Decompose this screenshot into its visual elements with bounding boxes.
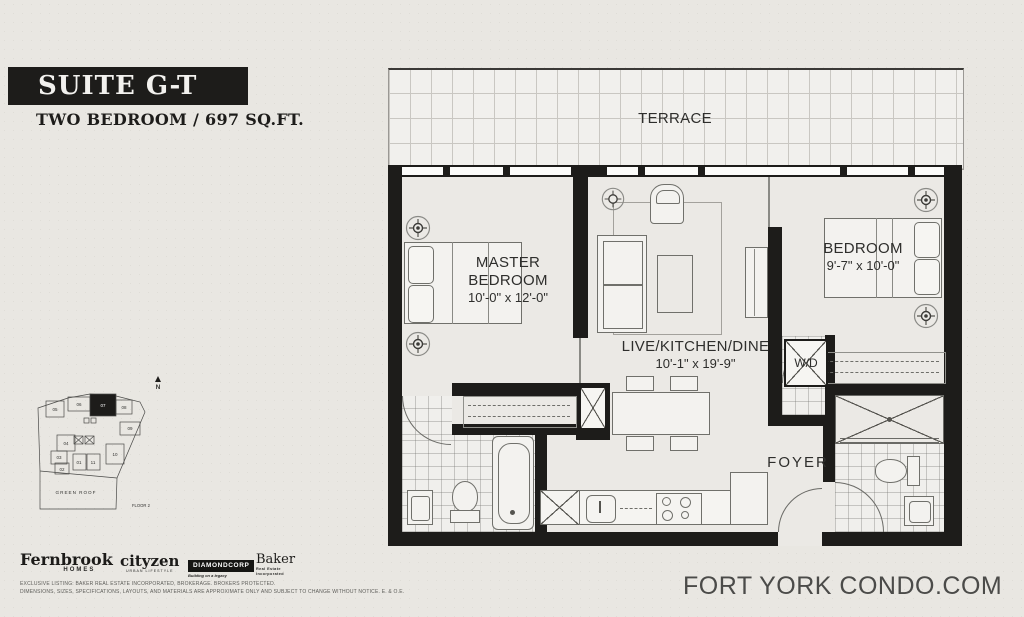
- keyplan-unit-label: 02: [59, 467, 65, 472]
- tv-console-line: [754, 249, 755, 316]
- keyplan: 05 06 07 08 09 04 03 02 01 11 10 GREEN R…: [28, 372, 178, 522]
- sofa-cushion: [603, 241, 643, 285]
- ceiling-light-icon: [404, 330, 432, 358]
- dining-chair: [670, 436, 698, 451]
- kitchen-faucet: [599, 501, 601, 513]
- bath2-sink-basin: [909, 501, 931, 523]
- window-wall-segment: [571, 165, 607, 177]
- bedroom-partition-line: [768, 177, 770, 227]
- disclaimer-line2: DIMENSIONS, SIZES, SPECIFICATIONS, LAYOU…: [20, 588, 404, 596]
- suite-subtitle: TWO BEDROOM / 697 SQ.FT.: [36, 110, 304, 129]
- suite-title: SUITE G-T: [8, 71, 197, 101]
- wall-bottom-right: [822, 532, 962, 546]
- logo-cityzen-name: cityzen: [120, 552, 179, 570]
- bath2-toilet-tank: [907, 456, 920, 486]
- window-mullion: [698, 165, 705, 177]
- living-dims: 10'-1" x 19'-9": [598, 356, 793, 371]
- floorplan-page: { "header": { "suite_name": "SUITE G-T",…: [0, 0, 1024, 617]
- ceiling-light-icon: [600, 186, 626, 212]
- logo-baker-tagline: Real Estate Incorporated: [256, 567, 300, 576]
- disclaimer-line1: EXCLUSIVE LISTING: BAKER REAL ESTATE INC…: [20, 580, 404, 588]
- wall-master-bath: [452, 383, 578, 396]
- keyplan-unit-label: 06: [76, 402, 82, 407]
- bath1-sink-basin: [411, 496, 430, 521]
- fridge: [540, 490, 580, 525]
- logo-diamondcorp-name: DIAMONDCORP: [188, 560, 254, 572]
- window-mullion: [908, 165, 915, 177]
- shower-drain: [887, 417, 892, 422]
- sofa-cushion: [603, 285, 643, 329]
- logo-diamondcorp: DIAMONDCORP Building on a legacy: [188, 554, 254, 578]
- keyplan-unit-label: 04: [63, 441, 69, 446]
- window-wall: [388, 165, 962, 177]
- floor-label: FLOOR 2: [132, 503, 151, 508]
- window-mullion: [638, 165, 645, 177]
- keyplan-unit-label: 03: [56, 455, 62, 460]
- foyer-label: FOYER: [738, 454, 858, 472]
- keyplan-unit-label: 10: [112, 452, 118, 457]
- keyplan-unit-label: 08: [121, 405, 127, 410]
- green-roof-label: GREEN ROOF: [56, 490, 97, 495]
- terrace-label: TERRACE: [388, 110, 962, 128]
- wall-wd-bottom: [768, 415, 830, 426]
- master-closet: [463, 396, 577, 428]
- pantry-cabinet: [730, 472, 768, 525]
- dining-chair: [626, 376, 654, 391]
- keyplan-unit-label: 11: [91, 460, 96, 465]
- keyplan-unit-label: 01: [76, 460, 82, 465]
- logo-baker-name: Baker: [256, 552, 300, 567]
- armchair-back: [656, 190, 680, 204]
- window-mullion: [443, 165, 450, 177]
- floorplan: TERRACE: [388, 68, 962, 558]
- logo-fernbrook: Fernbrook HOMES: [20, 550, 113, 573]
- keyplan-unit-label: 09: [127, 426, 133, 431]
- wall-living-bedroom: [768, 227, 782, 423]
- master-bedroom-dims: 10'-0" x 12'-0": [433, 290, 583, 305]
- tv-console: [745, 247, 768, 318]
- ceiling-light-icon: [912, 186, 940, 214]
- counter-dash: [620, 508, 652, 509]
- logo-cityzen-tagline: URBAN LIFESTYLE: [120, 569, 179, 573]
- shower-threshold: [840, 438, 939, 443]
- master-bedroom-label: MASTER BEDROOM: [448, 254, 568, 289]
- master-bed-pillow: [408, 285, 434, 323]
- laundry-label: W/D: [784, 356, 828, 370]
- coffee-table: [657, 255, 693, 313]
- north-arrow-icon: [155, 376, 161, 382]
- greenroof-separator: [40, 471, 117, 478]
- closet-shelf-line: [468, 416, 570, 417]
- bath1-toilet-tank: [450, 510, 480, 523]
- corridor-cell: [84, 418, 89, 423]
- ceiling-light-icon: [404, 214, 432, 242]
- logo-diamondcorp-tagline: Building on a legacy: [188, 573, 254, 578]
- wall-bottom-left: [388, 532, 778, 546]
- bedroom-label: BEDROOM: [788, 240, 938, 258]
- bathtub-drain: [510, 510, 515, 515]
- bath1-toilet-bowl: [452, 481, 478, 512]
- wall-left: [388, 165, 402, 546]
- closet-rod-line: [468, 405, 570, 406]
- window-mullion: [503, 165, 510, 177]
- corridor-cell: [91, 418, 96, 423]
- wall-bedroom-bath2: [835, 383, 962, 395]
- bath2-toilet-bowl: [875, 459, 907, 483]
- north-label: N: [156, 384, 161, 391]
- kitchen-sink: [586, 495, 616, 523]
- living-label: LIVE/KITCHEN/DINE: [598, 338, 793, 356]
- website-text: FORT YORK CONDO.COM: [683, 572, 1002, 601]
- suite-title-banner: SUITE G-T: [8, 67, 248, 105]
- shaft-xbox: [581, 388, 605, 428]
- keyplan-unit-label: 05: [52, 407, 58, 412]
- dining-chair: [670, 376, 698, 391]
- wall-right: [944, 165, 962, 546]
- dining-chair: [626, 436, 654, 451]
- dining-table: [612, 392, 710, 435]
- window-mullion: [840, 165, 847, 177]
- master-bed-pillow: [408, 246, 434, 284]
- logo-cityzen: cityzen URBAN LIFESTYLE: [120, 552, 179, 573]
- disclaimer: EXCLUSIVE LISTING: BAKER REAL ESTATE INC…: [20, 580, 404, 596]
- bedroom-dims: 9'-7" x 10'-0": [788, 258, 938, 273]
- keyplan-unit-label-highlighted: 07: [100, 403, 106, 408]
- logo-baker: Baker Real Estate Incorporated: [256, 552, 300, 576]
- ceiling-light-icon: [912, 302, 940, 330]
- wall-master-living: [573, 177, 588, 338]
